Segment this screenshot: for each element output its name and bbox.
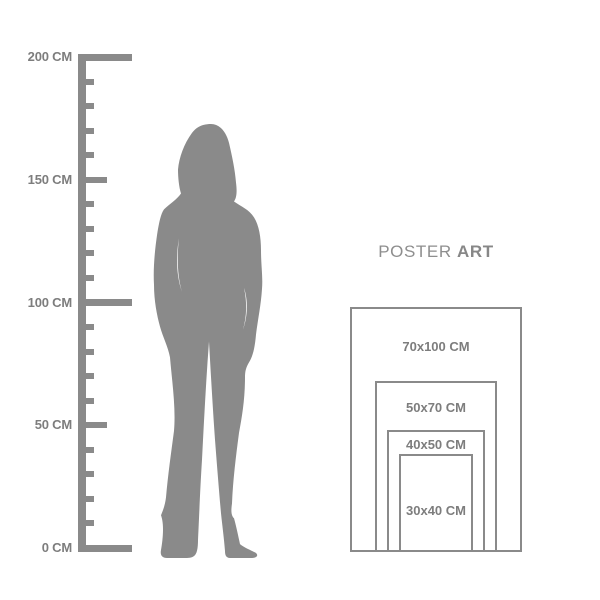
ruler-label: 100 CM — [0, 295, 72, 311]
ruler-label: 50 CM — [0, 417, 72, 433]
ruler-tick-minor — [78, 128, 94, 134]
ruler-tick-minor — [78, 373, 94, 379]
ruler-tick-minor — [78, 520, 94, 526]
ruler-tick-medium — [78, 177, 107, 183]
ruler-tick-minor — [78, 447, 94, 453]
ruler-tick-minor — [78, 152, 94, 158]
poster-size-label: 40x50 CM — [376, 437, 496, 453]
ruler-tick-minor — [78, 103, 94, 109]
person-silhouette — [151, 121, 265, 558]
ruler-label: 150 CM — [0, 172, 72, 188]
ruler-tick-minor — [78, 226, 94, 232]
person-silhouette-shape — [154, 124, 263, 558]
size-guide-infographic: 200 CM150 CM100 CM50 CM0 CM POSTER ART 7… — [0, 0, 600, 600]
ruler-tick-minor — [78, 471, 94, 477]
ruler-label: 0 CM — [0, 540, 72, 556]
brand-title-bold: ART — [457, 242, 494, 261]
ruler-tick-minor — [78, 275, 94, 281]
ruler-tick-minor — [78, 398, 94, 404]
ruler-tick-minor — [78, 201, 94, 207]
ruler-tick-major — [78, 545, 132, 552]
ruler-label: 200 CM — [0, 49, 72, 65]
ruler-tick-medium — [78, 422, 107, 428]
ruler-tick-minor — [78, 496, 94, 502]
ruler-tick-major — [78, 54, 132, 61]
poster-size-label: 50x70 CM — [376, 400, 496, 416]
brand-title-regular: POSTER — [378, 242, 452, 261]
ruler-tick-major — [78, 299, 132, 306]
brand-title: POSTER ART — [340, 242, 532, 262]
ruler-tick-minor — [78, 79, 94, 85]
poster-size-label: 70x100 CM — [376, 339, 496, 355]
ruler-tick-minor — [78, 349, 94, 355]
ruler-tick-minor — [78, 324, 94, 330]
ruler-tick-minor — [78, 250, 94, 256]
poster-size-label: 30x40 CM — [376, 503, 496, 519]
